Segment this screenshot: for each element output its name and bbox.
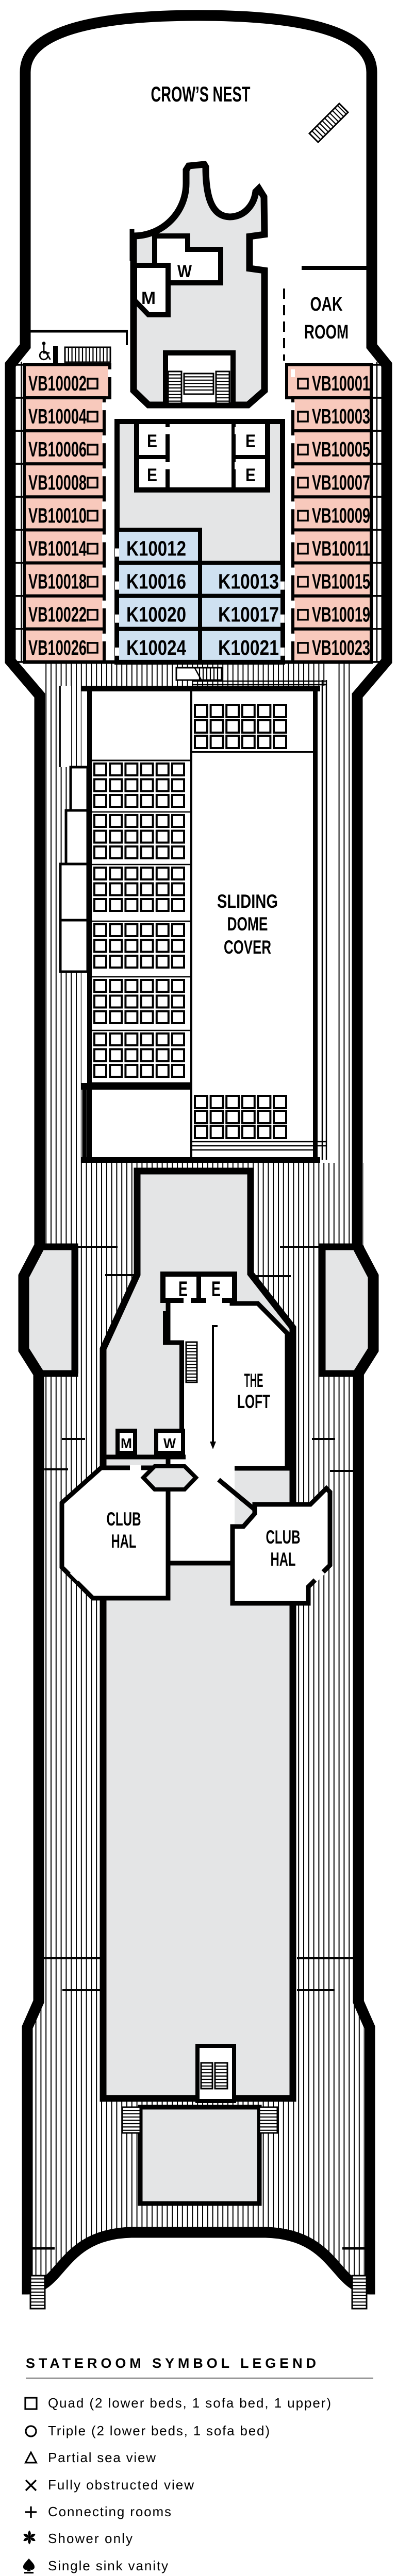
svg-text:VB10007: VB10007 [312, 470, 370, 494]
svg-text:K10012: K10012 [126, 537, 186, 561]
svg-text:VB10002: VB10002 [28, 371, 87, 395]
svg-text:K10024: K10024 [126, 636, 186, 659]
svg-text:E: E [245, 431, 256, 451]
svg-text:W: W [163, 1435, 176, 1451]
svg-text:CROW’S NEST: CROW’S NEST [151, 82, 251, 106]
svg-text:K10017: K10017 [218, 603, 279, 626]
svg-text:DOME: DOME [227, 913, 268, 935]
svg-text:VB10022: VB10022 [28, 603, 87, 626]
svg-text:VB10001: VB10001 [312, 371, 370, 395]
svg-text:STATEROOM SYMBOL LEGEND: STATEROOM SYMBOL LEGEND [26, 2355, 316, 2371]
svg-text:Fully obstructed view: Fully obstructed view [48, 2477, 194, 2493]
svg-text:K10020: K10020 [126, 603, 186, 626]
svg-text:E: E [147, 465, 157, 485]
svg-text:E: E [178, 1277, 188, 1301]
svg-text:SLIDING: SLIDING [217, 891, 278, 912]
svg-text:E: E [147, 431, 157, 451]
svg-text:E: E [245, 465, 256, 485]
svg-text:VB10008: VB10008 [28, 470, 87, 494]
svg-text:VB10015: VB10015 [312, 570, 370, 594]
svg-text:ROOM: ROOM [304, 321, 349, 343]
svg-text:VB10023: VB10023 [312, 636, 370, 659]
svg-text:M: M [121, 1435, 132, 1451]
svg-text:VB10014: VB10014 [28, 537, 87, 561]
svg-text:CLUB: CLUB [107, 1509, 141, 1530]
svg-text:CLUB: CLUB [266, 1527, 301, 1548]
svg-text:VB10004: VB10004 [28, 404, 87, 428]
svg-text:VB10006: VB10006 [28, 437, 87, 461]
svg-text:COVER: COVER [224, 937, 271, 958]
svg-text:K10016: K10016 [126, 570, 186, 594]
svg-text:Quad (2 lower beds, 1 sofa bed: Quad (2 lower beds, 1 sofa bed, 1 upper) [48, 2395, 331, 2411]
svg-text:THE: THE [244, 1370, 263, 1391]
svg-text:K10013: K10013 [218, 570, 279, 594]
svg-text:HAL: HAL [271, 1549, 296, 1570]
svg-text:LOFT: LOFT [237, 1391, 270, 1412]
svg-text:VB10026: VB10026 [28, 636, 87, 659]
svg-text:Partial sea view: Partial sea view [48, 2450, 156, 2465]
svg-text:W: W [177, 262, 192, 281]
svg-text:K10021: K10021 [218, 636, 279, 659]
svg-text:VB10019: VB10019 [312, 603, 370, 626]
svg-text:VB10005: VB10005 [312, 437, 370, 461]
svg-text:VB10003: VB10003 [312, 404, 370, 428]
svg-text:Single sink vanity: Single sink vanity [48, 2558, 168, 2573]
svg-text:VB10011: VB10011 [312, 537, 370, 561]
svg-text:OAK: OAK [310, 294, 343, 315]
svg-text:E: E [211, 1277, 221, 1301]
svg-text:HAL: HAL [111, 1531, 137, 1552]
svg-text:VB10009: VB10009 [312, 503, 370, 527]
svg-text:VB10018: VB10018 [28, 570, 87, 594]
svg-text:VB10010: VB10010 [28, 503, 87, 527]
svg-text:M: M [141, 289, 156, 308]
svg-text:Shower only: Shower only [48, 2531, 133, 2546]
